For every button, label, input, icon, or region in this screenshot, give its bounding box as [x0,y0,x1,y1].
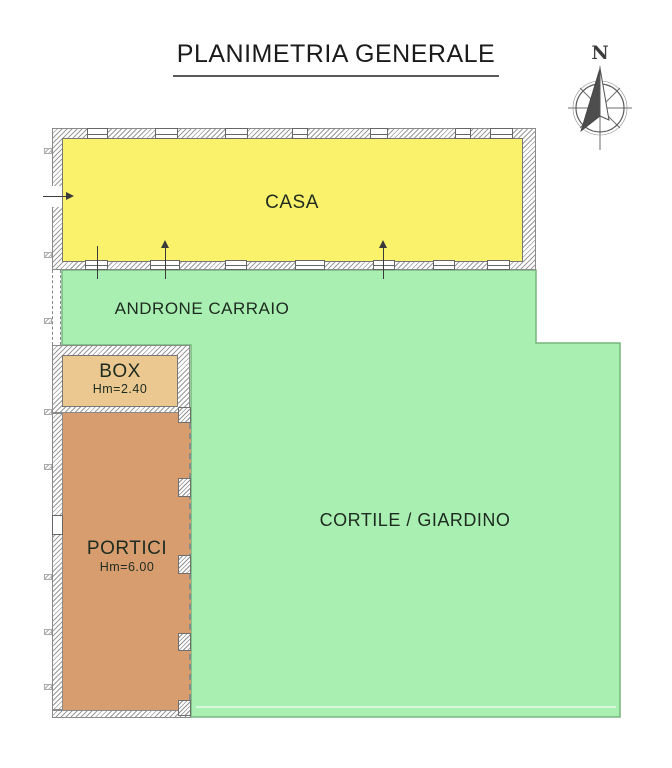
casa-window [292,128,308,139]
floor-plan-page: PLANIMETRIA GENERALE N [0,0,672,768]
portici-window [52,515,63,535]
portico-pillar [178,407,191,423]
portico-pillar [178,478,191,497]
casa-window [295,260,325,270]
box-height-note: Hm=2.40 [40,382,200,396]
cortile-giardino-label: CORTILE / GIARDINO [295,510,535,531]
portici-height-note: Hm=6.00 [42,560,212,574]
boundary-tick [44,574,52,580]
garden-walk-line [196,706,616,708]
androne-carraio-label: ANDRONE CARRAIO [92,299,312,319]
casa-window [455,128,471,139]
casa-window [433,260,455,270]
boundary-tick [44,629,52,635]
portici-label: PORTICI [42,538,212,560]
casa-window [487,260,510,270]
casa-window [225,128,248,139]
boundary-tick [44,684,52,690]
casa-window [87,128,108,139]
casa-window [370,128,388,139]
entry-arrow-shaft [165,247,166,279]
boundary-tick [44,464,52,470]
portico-pillar [178,633,191,651]
casa-label: CASA [212,192,372,214]
property-boundary-dashed-strip [52,270,61,345]
boundary-tick [44,148,52,154]
portici-bottom-wall [52,710,191,718]
casa-opening [373,260,395,270]
casa-window [490,128,513,139]
casa-window [225,260,247,270]
boundary-tick [44,252,52,258]
casa-window [155,128,178,139]
entry-arrow-shaft [43,196,67,197]
entry-arrow-head [66,192,74,200]
entry-arrow-shaft [383,247,384,279]
portico-pillar [178,700,191,716]
entry-arrow-head [161,240,169,248]
boundary-tick [44,409,52,415]
entry-arrow-head [379,240,387,248]
partition-mark-line [97,246,98,279]
boundary-tick [44,318,52,324]
box-label: BOX [40,361,200,383]
